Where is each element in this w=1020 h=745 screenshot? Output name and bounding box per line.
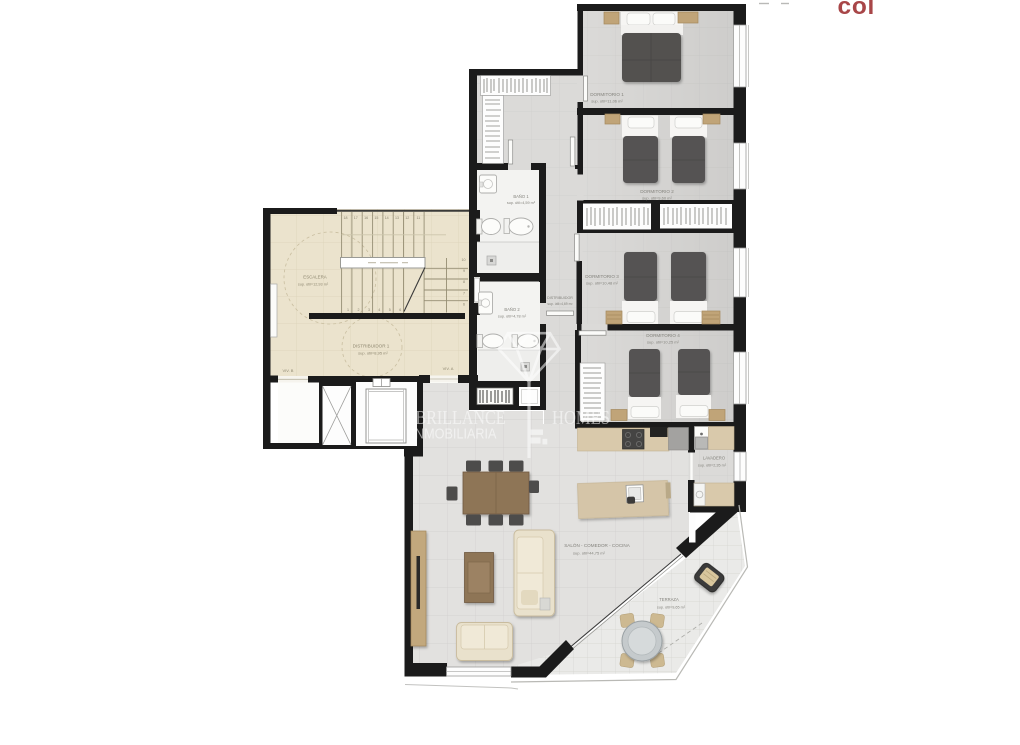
svg-text:DORMITORIO 1: DORMITORIO 1 [590, 92, 624, 97]
svg-text:DORMITORIO 3: DORMITORIO 3 [585, 274, 619, 279]
svg-text:DISTRIBUIDOR: DISTRIBUIDOR [547, 296, 573, 300]
svg-text:6: 6 [399, 308, 401, 312]
svg-text:VIV. B: VIV. B [283, 368, 294, 373]
svg-text:VIV. A: VIV. A [443, 366, 454, 371]
svg-text:16: 16 [364, 216, 368, 220]
svg-text:sup. útil=4,78 m²: sup. útil=4,78 m² [498, 315, 527, 319]
svg-text:sup. útil=8,95 m²: sup. útil=8,95 m² [358, 351, 388, 356]
svg-text:14: 14 [385, 216, 389, 220]
svg-text:DORMITORIO 4: DORMITORIO 4 [646, 333, 680, 338]
svg-text:sup. útil=44,75 m²: sup. útil=44,75 m² [573, 551, 606, 556]
svg-text:12: 12 [405, 216, 409, 220]
svg-text:9: 9 [463, 269, 465, 273]
svg-text:sup. útil=9,65 m²: sup. útil=9,65 m² [657, 606, 686, 610]
svg-text:2: 2 [358, 308, 360, 312]
svg-text:sup. útil=2,35 m²: sup. útil=2,35 m² [698, 464, 727, 468]
svg-text:17: 17 [354, 216, 358, 220]
svg-text:7: 7 [463, 292, 465, 296]
svg-text:LAVADERO: LAVADERO [703, 456, 726, 461]
svg-text:4: 4 [378, 308, 380, 312]
svg-text:ESCALERA: ESCALERA [303, 275, 326, 280]
svg-text:sup. útil=11,06 m²: sup. útil=11,06 m² [591, 99, 623, 104]
svg-text:11: 11 [417, 216, 421, 220]
svg-text:HOMES: HOMES [552, 407, 610, 429]
svg-text:TERRAZA: TERRAZA [659, 597, 679, 602]
svg-text:BAÑO 2: BAÑO 2 [504, 307, 520, 312]
svg-text:DORMITORIO 2: DORMITORIO 2 [640, 189, 674, 194]
svg-text:BAÑO 1: BAÑO 1 [513, 194, 529, 199]
svg-text:15: 15 [374, 216, 378, 220]
svg-text:5: 5 [389, 308, 391, 312]
svg-text:13: 13 [395, 216, 399, 220]
svg-text:10: 10 [462, 258, 466, 262]
svg-text:sup. útil=12,93 m²: sup. útil=12,93 m² [298, 283, 329, 287]
svg-text:sup. útil=10,25 m²: sup. útil=10,25 m² [647, 340, 680, 345]
svg-text:18: 18 [344, 216, 348, 220]
svg-text:1: 1 [347, 308, 349, 312]
svg-text:sup. útil=10,48 m²: sup. útil=10,48 m² [586, 281, 619, 286]
svg-text:sup. útil=9,60 m²: sup. útil=9,60 m² [642, 196, 672, 201]
svg-text:sup. útil=4,59 m²: sup. útil=4,59 m² [507, 201, 536, 205]
svg-text:INMOBILIARIA: INMOBILIARIA [412, 427, 497, 443]
svg-text:DISTRIBUIDOR 1: DISTRIBUIDOR 1 [353, 344, 390, 349]
svg-text:sup. útil=4,69 m²: sup. útil=4,69 m² [547, 302, 573, 306]
svg-text:6: 6 [463, 303, 465, 307]
svg-text:col: col [838, 0, 876, 20]
svg-text:8: 8 [463, 280, 465, 284]
svg-text:3: 3 [368, 308, 370, 312]
svg-text:SALÓN - COMEDOR - COCINA: SALÓN - COMEDOR - COCINA [564, 542, 631, 548]
